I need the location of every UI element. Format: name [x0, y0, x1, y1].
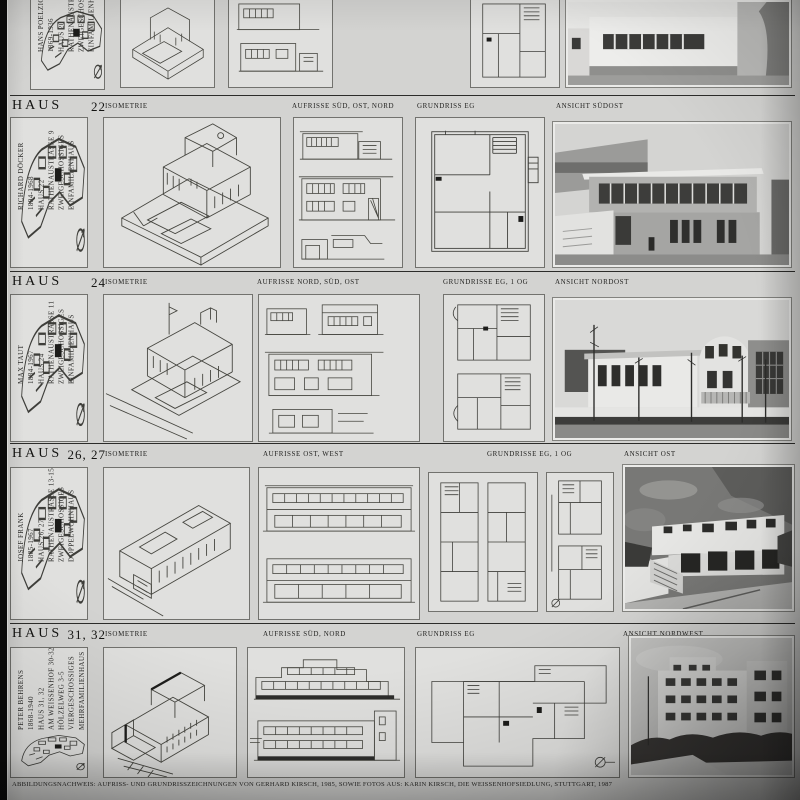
row-divider — [10, 95, 795, 96]
elevation-drawing — [294, 118, 402, 267]
isometric-drawing — [121, 0, 214, 87]
floorplan-panel-haus24 — [443, 294, 545, 442]
row-header-haus2627: HAUS 26, 27 ISOMETRIE AUFRISSE OST, WEST… — [10, 446, 795, 463]
photo-ansicht-ost — [625, 467, 792, 609]
architect-dates: 1868-1940 — [26, 653, 36, 730]
row-divider — [10, 271, 795, 272]
isometric-panel-haus24 — [103, 294, 253, 442]
floorplan-panel-haus2627-a — [428, 472, 538, 612]
haus-id: HAUS 31, 32 — [36, 653, 46, 730]
isometric-drawing — [104, 468, 249, 619]
site-plan-sketch — [15, 117, 88, 264]
haus-number: 24 — [62, 275, 106, 291]
address-2: HÖLZELWEG 3-5 — [57, 653, 67, 730]
column-label-isometrie: ISOMETRIE — [105, 102, 148, 110]
column-label-grundriss: GRUNDRISSE EG, 1 OG — [443, 278, 528, 286]
floorplan-drawing — [471, 0, 559, 87]
floorplan-panel-haus2627-b — [546, 472, 614, 612]
floorplan-panel-haus22 — [415, 117, 545, 268]
haus-label: HAUS — [12, 446, 62, 462]
column-label-ansicht: ANSICHT NORDOST — [555, 278, 629, 286]
isometric-panel-haus22 — [103, 117, 281, 268]
photo-ansicht — [568, 2, 789, 85]
architect-info-panel-haus20: HANS POELZIG 1869-1936 HAUS 20 RATHENAUS… — [30, 0, 105, 90]
photo-ansicht-suedost — [555, 124, 789, 265]
column-label-grundriss: GRUNDRISSE EG, 1 OG — [487, 450, 572, 458]
photo-panel-haus3132 — [628, 635, 795, 778]
photo-panel-haus20 — [565, 0, 792, 88]
architect-info-panel-haus2627: JOSEF FRANK 1885-1967 HAUS 26, 27 RATHEN… — [10, 467, 88, 620]
column-label-aufrisse: AUFRISSE OST, WEST — [263, 450, 344, 458]
photo-ansicht-nordwest — [631, 638, 792, 775]
isometric-panel-haus2627 — [103, 467, 250, 620]
column-label-grundriss: GRUNDRISS EG — [417, 102, 475, 110]
architect-info-text: PETER BEHRENS 1868-1940 HAUS 31, 32 AM W… — [16, 653, 84, 730]
column-label-grundriss: GRUNDRISS EG — [417, 630, 475, 638]
column-label-aufrisse: AUFRISSE SÜD, NORD — [263, 630, 346, 638]
elevation-panel-haus24 — [258, 294, 420, 442]
haus-number: 31, 32 — [62, 627, 106, 643]
photo-panel-haus24 — [552, 297, 792, 441]
address: AM WEISSENHOF 30-32 — [46, 653, 56, 730]
haus-label: HAUS — [12, 98, 62, 114]
floorplan-panel-haus3132 — [415, 647, 620, 778]
row-divider — [10, 623, 795, 624]
haus-number: 22 — [62, 99, 106, 115]
floorplan-drawing — [547, 473, 613, 611]
site-plan-sketch — [15, 294, 88, 438]
haus-label: HAUS — [12, 626, 62, 642]
row-divider — [10, 443, 795, 444]
architect-info-panel-haus22: RICHARD DÖCKER 1894-1968 HAUS 22 RATHENA… — [10, 117, 88, 268]
caption: ABBILDUNGSNACHWEIS: AUFRISS- UND GRUNDRI… — [12, 781, 782, 788]
floorplan-panel — [470, 0, 560, 88]
floorplan-drawing — [444, 295, 544, 441]
building-type-2: MEHRFAMILIENHAUS — [77, 653, 87, 730]
floorplan-drawing — [416, 648, 619, 777]
row-header-haus22: HAUS 22 ISOMETRIE AUFRISSE SÜD, OST, NOR… — [10, 98, 795, 115]
scan-edge-strip — [0, 0, 8, 800]
elevation-panel-haus3132 — [247, 647, 405, 778]
architect-info-panel-haus3132: PETER BEHRENS 1868-1940 HAUS 31, 32 AM W… — [10, 647, 88, 778]
column-label-ansicht: ANSICHT SÜDOST — [556, 102, 624, 110]
poster-sheet: HANS POELZIG 1869-1936 HAUS 20 RATHENAUS… — [0, 0, 800, 800]
site-plan-sketch — [35, 0, 105, 86]
architect-info-panel-haus24: MAX TAUT 1884-1967 HAUS 24 RATHENAUSTRAS… — [10, 294, 88, 442]
elevation-panel — [228, 0, 333, 88]
column-label-aufrisse: AUFRISSE NORD, SÜD, OST — [257, 278, 360, 286]
row-header-haus24: HAUS 24 ISOMETRIE AUFRISSE NORD, SÜD, OS… — [10, 274, 795, 291]
column-label-isometrie: ISOMETRIE — [105, 278, 148, 286]
column-label-isometrie: ISOMETRIE — [105, 450, 148, 458]
elevation-panel-haus2627 — [258, 467, 420, 620]
elevation-drawing — [248, 648, 404, 777]
isometric-panel-haus3132 — [103, 647, 237, 778]
elevation-panel-haus22 — [293, 117, 403, 268]
photo-ansicht-nordost — [555, 300, 789, 438]
building-type: VIERGESCHOSSIGES — [67, 653, 77, 730]
elevation-drawing — [229, 0, 332, 87]
elevation-drawing — [259, 468, 419, 619]
isometric-drawing — [104, 118, 280, 267]
column-label-aufrisse: AUFRISSE SÜD, OST, NORD — [292, 102, 394, 110]
photo-panel-haus2627 — [622, 464, 795, 612]
elevation-drawing — [259, 295, 419, 441]
column-label-ansicht: ANSICHT OST — [624, 450, 676, 458]
photo-panel-haus22 — [552, 121, 792, 268]
haus-label: HAUS — [12, 274, 62, 290]
column-label-isometrie: ISOMETRIE — [105, 630, 148, 638]
site-plan-sketch — [15, 728, 88, 774]
floorplan-drawing — [429, 473, 537, 611]
isometric-drawing — [104, 295, 252, 441]
isometric-panel — [120, 0, 215, 88]
haus-number: 26, 27 — [62, 447, 106, 463]
floorplan-drawing — [416, 118, 544, 267]
site-plan-sketch — [15, 467, 88, 616]
isometric-drawing — [104, 648, 236, 777]
architect-name: PETER BEHRENS — [16, 653, 26, 730]
